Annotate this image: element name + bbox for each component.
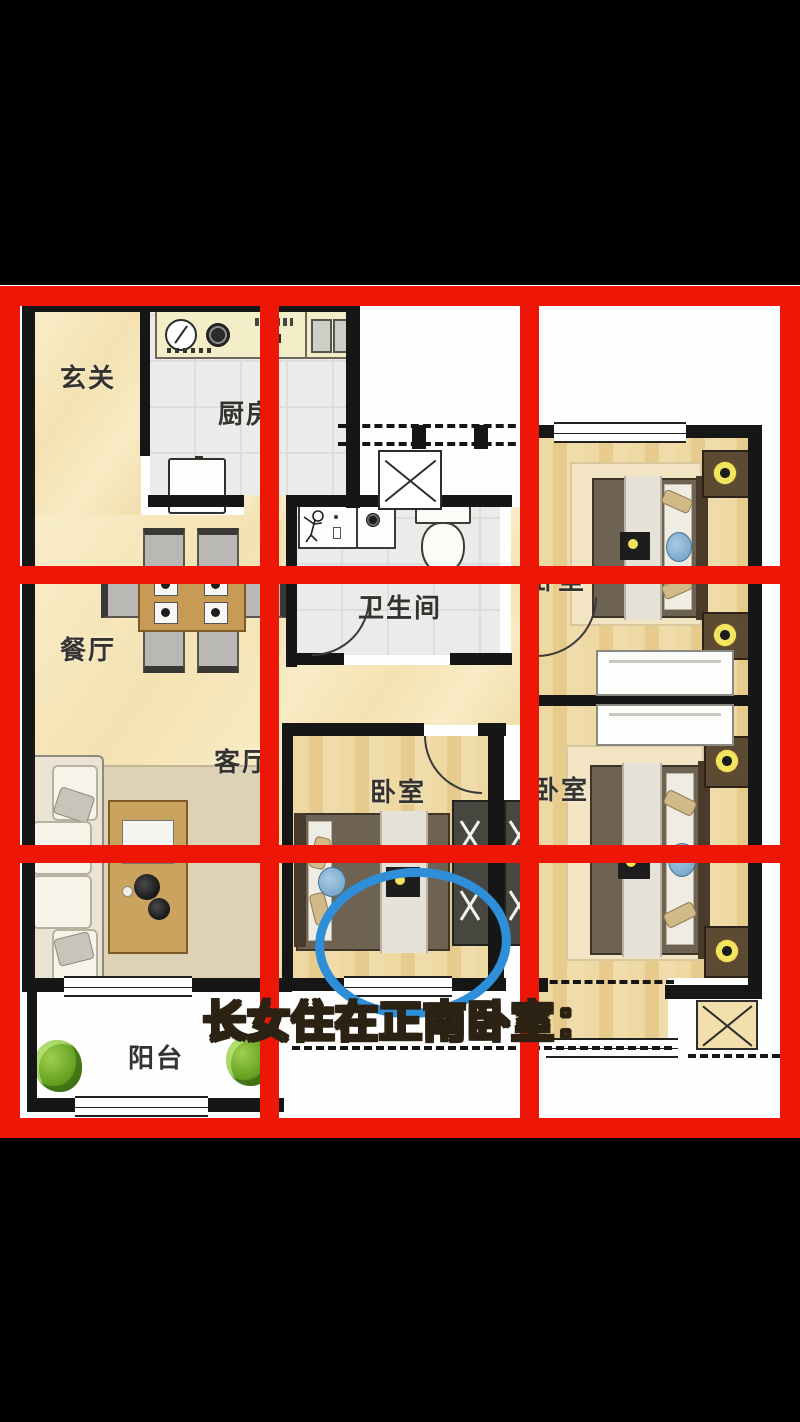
window [554,422,686,443]
caption-char: 在 [335,1000,379,1046]
faucet-dot [334,515,338,519]
kettle [134,874,160,900]
grid-line-horizontal-1 [0,566,800,584]
wall [665,985,762,999]
sink-basin-left [311,319,332,353]
dashed-opening [538,980,674,984]
dashed-opening [338,442,528,446]
caption-char: 长 [203,1000,247,1046]
lamp [713,623,737,647]
lamp [715,939,739,963]
room-label-bathroom: 卫生间 [358,588,442,625]
room-label-entry: 玄关 [60,358,116,395]
video-frame: 玄关 厨房 餐厅 客厅 卫生间 卧室 卧室 卧室 阳台 长女住在正南卧室： [0,0,800,1422]
caption-char: 正 [379,1000,423,1046]
room-label-dining: 餐厅 [60,630,116,667]
ac-platform [696,1000,758,1050]
wall [22,298,35,990]
stove-burner [205,322,231,348]
stick-figure-art [302,509,328,543]
soap-dispenser [333,527,341,539]
wall [27,1098,75,1112]
teacup [122,886,133,897]
wall [148,495,244,507]
washing-machine [356,505,396,549]
wall [140,298,150,456]
headboard [294,813,306,947]
duct-shaft [378,450,442,510]
nightstand [704,926,752,978]
caption-char: 住 [291,1000,335,1046]
caption-char: ： [555,1000,599,1046]
window [64,976,192,997]
bed-tray [620,532,650,560]
caption: 长女住在正南卧室： [203,1000,599,1046]
caption-char: 南 [423,1000,467,1046]
caption-char: 卧 [467,1000,511,1046]
room-label-balcony: 阳台 [128,1038,184,1075]
plant [34,1040,82,1092]
lamp [713,461,737,485]
wall [748,425,762,988]
teapot [148,898,170,920]
wall [346,298,360,508]
nightstand [702,450,750,498]
wall [27,990,37,1112]
wall [450,653,512,665]
sofa-cushion [32,875,92,929]
grid-border-right [780,286,800,1138]
washer-door [366,513,380,527]
grid-border-top [0,286,800,306]
dashed-opening [338,424,528,428]
room-label-bedroom-se: 卧室 [533,770,589,807]
bay-window [596,704,734,746]
caption-char: 室 [511,1000,555,1046]
wall [282,723,424,736]
counter-knobs [167,348,211,353]
kitchen-timer-dial [165,319,197,351]
window [75,1096,208,1117]
bathroom-vanity [298,505,358,549]
coffee-table [108,800,188,954]
place-setting [154,602,178,624]
hallway-floor [290,665,525,725]
round-pillow [666,532,692,562]
place-setting [204,602,228,624]
lamp [715,749,739,773]
sofa [24,755,104,991]
entry-floor [35,312,141,522]
bay-window [596,650,734,696]
caption-char: 女 [247,1000,291,1046]
grid-border-left [0,286,20,1138]
kitchen-counter [155,310,309,359]
bedroom-ne-bed [592,478,706,618]
room-label-bedroom-s: 卧室 [370,772,426,809]
grid-line-horizontal-2 [0,845,800,863]
grid-border-bottom [0,1118,800,1138]
dashed-opening [688,1054,780,1058]
